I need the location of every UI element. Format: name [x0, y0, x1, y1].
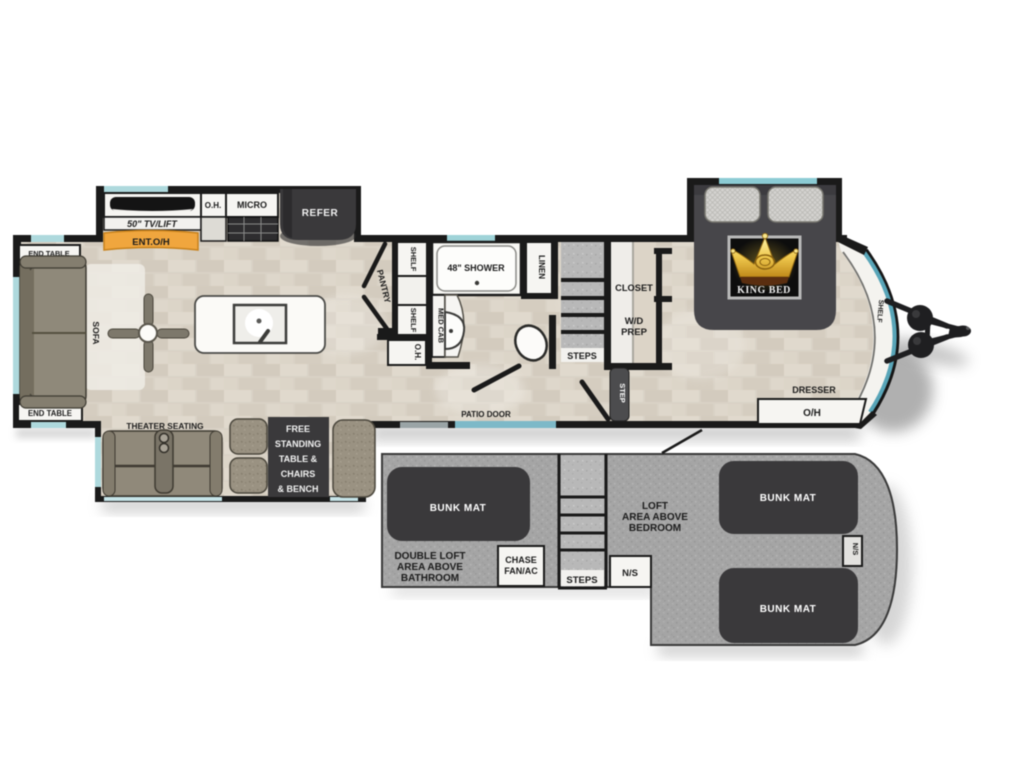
svg-text:O.H.: O.H. [413, 344, 422, 360]
svg-text:CHASE: CHASE [505, 555, 537, 565]
svg-text:BUNK MAT: BUNK MAT [760, 604, 817, 615]
svg-text:MICRO: MICRO [237, 200, 267, 210]
svg-text:BUNK MAT: BUNK MAT [760, 493, 817, 504]
svg-text:FREE: FREE [286, 424, 310, 434]
svg-text:END TABLE: END TABLE [28, 409, 72, 418]
svg-text:W/D: W/D [625, 316, 644, 327]
svg-text:O.H.: O.H. [205, 201, 221, 210]
svg-text:FAN/AC: FAN/AC [504, 566, 538, 576]
svg-text:CHAIRS: CHAIRS [281, 469, 316, 479]
svg-text:AREA ABOVE: AREA ABOVE [622, 512, 688, 523]
svg-text:SHELF: SHELF [409, 247, 418, 272]
svg-text:SHELF: SHELF [409, 308, 418, 333]
svg-text:& BENCH: & BENCH [277, 484, 318, 494]
svg-text:DOUBLE LOFT: DOUBLE LOFT [394, 551, 465, 562]
svg-text:PATIO DOOR: PATIO DOOR [461, 410, 511, 419]
svg-text:BUNK MAT: BUNK MAT [430, 503, 487, 514]
svg-text:48" SHOWER: 48" SHOWER [447, 263, 505, 273]
svg-text:BEDROOM: BEDROOM [629, 523, 681, 534]
svg-text:STEPS: STEPS [567, 351, 597, 361]
svg-text:N/S: N/S [622, 568, 638, 579]
svg-text:LOFT: LOFT [642, 501, 668, 512]
svg-text:STEP: STEP [618, 383, 627, 403]
svg-text:O/H: O/H [803, 408, 821, 419]
svg-text:TABLE &: TABLE & [279, 454, 318, 464]
svg-text:50" TV/LIFT: 50" TV/LIFT [127, 219, 178, 229]
svg-text:BATHROOM: BATHROOM [401, 573, 459, 584]
svg-text:PREP: PREP [621, 327, 648, 338]
svg-text:SOFA: SOFA [91, 321, 101, 344]
svg-text:STANDING: STANDING [275, 439, 321, 449]
svg-text:REFER: REFER [302, 208, 339, 219]
svg-text:KING BED: KING BED [737, 285, 791, 296]
svg-text:N/S: N/S [851, 543, 860, 556]
svg-text:DRESSER: DRESSER [792, 385, 836, 395]
svg-text:STEPS: STEPS [566, 575, 597, 586]
svg-text:ENT.O/H: ENT.O/H [132, 237, 170, 248]
svg-text:LINEN: LINEN [537, 255, 546, 279]
svg-text:CLOSET: CLOSET [615, 283, 653, 293]
svg-text:AREA ABOVE: AREA ABOVE [397, 562, 463, 573]
